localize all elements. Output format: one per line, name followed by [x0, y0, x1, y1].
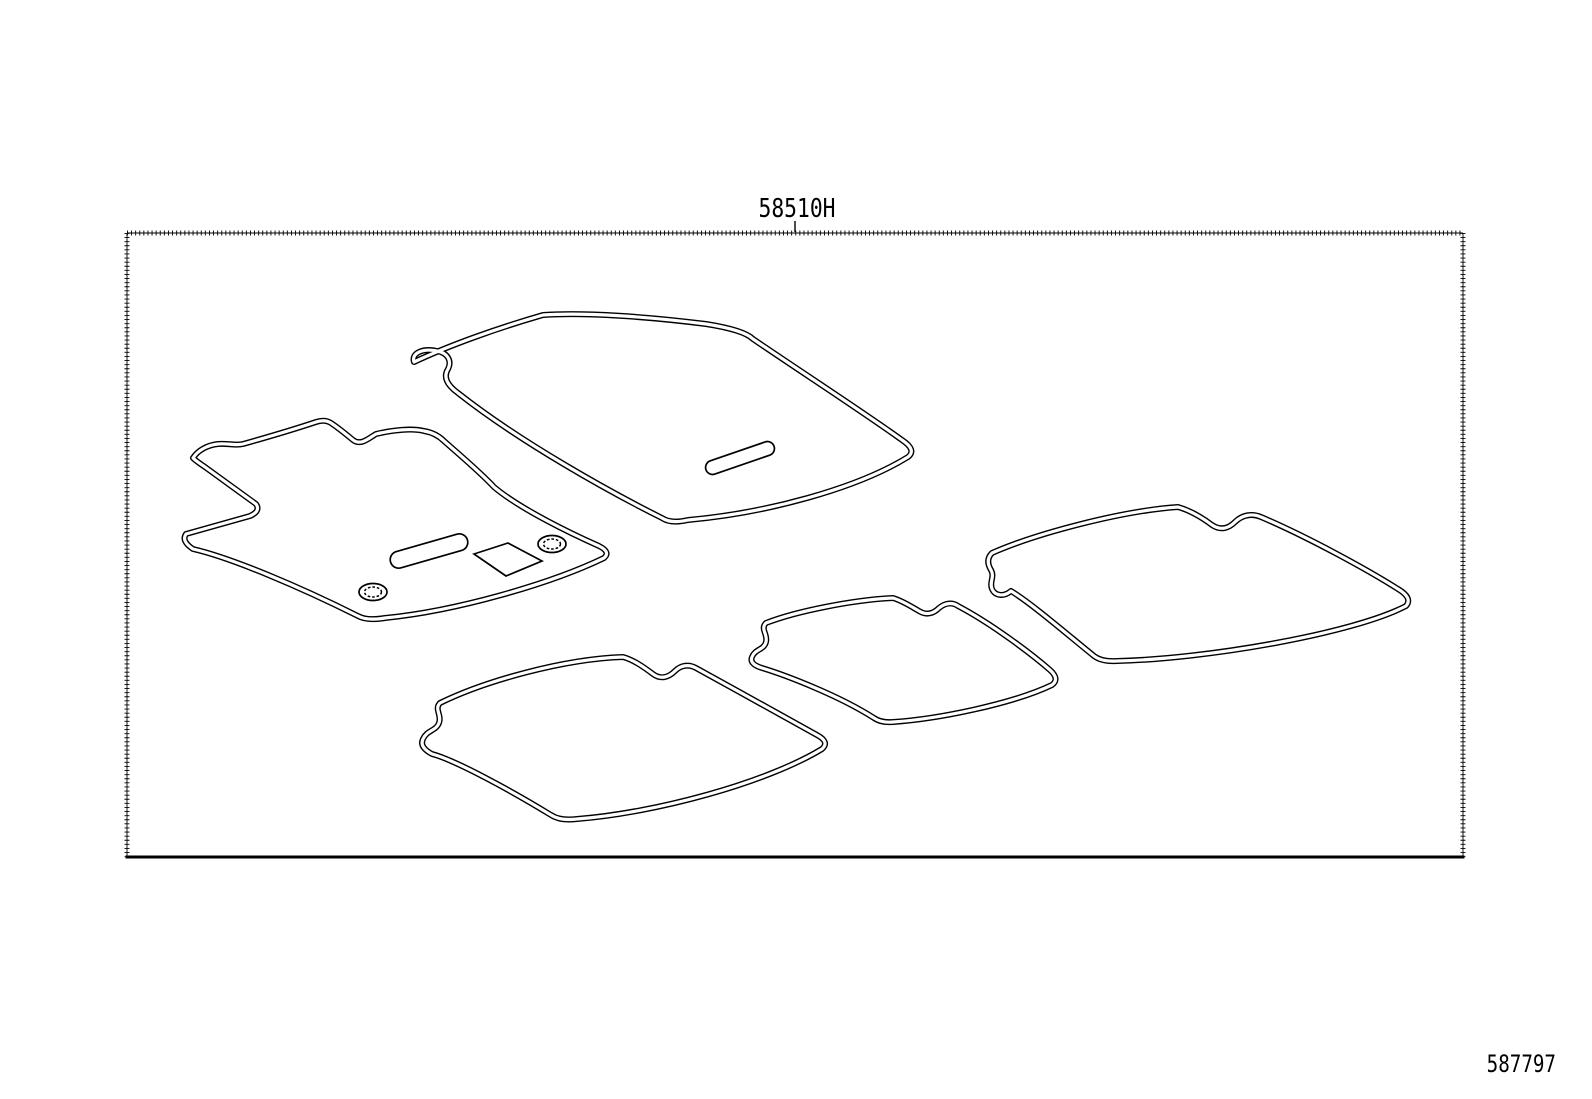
rear-floor-mat-right-outline	[988, 507, 1408, 661]
diagram-line-art	[0, 0, 1592, 1099]
rear-floor-mat-center	[751, 598, 1055, 722]
rear-floor-mat-right	[988, 507, 1408, 661]
rear-floor-mat-left-outline	[422, 657, 825, 820]
rear-floor-mat-left	[422, 657, 825, 820]
rear-floor-mat-center-outline	[751, 598, 1055, 722]
figure-number: 587797	[1476, 1050, 1556, 1078]
parts-diagram-page: 58510H	[0, 0, 1592, 1099]
